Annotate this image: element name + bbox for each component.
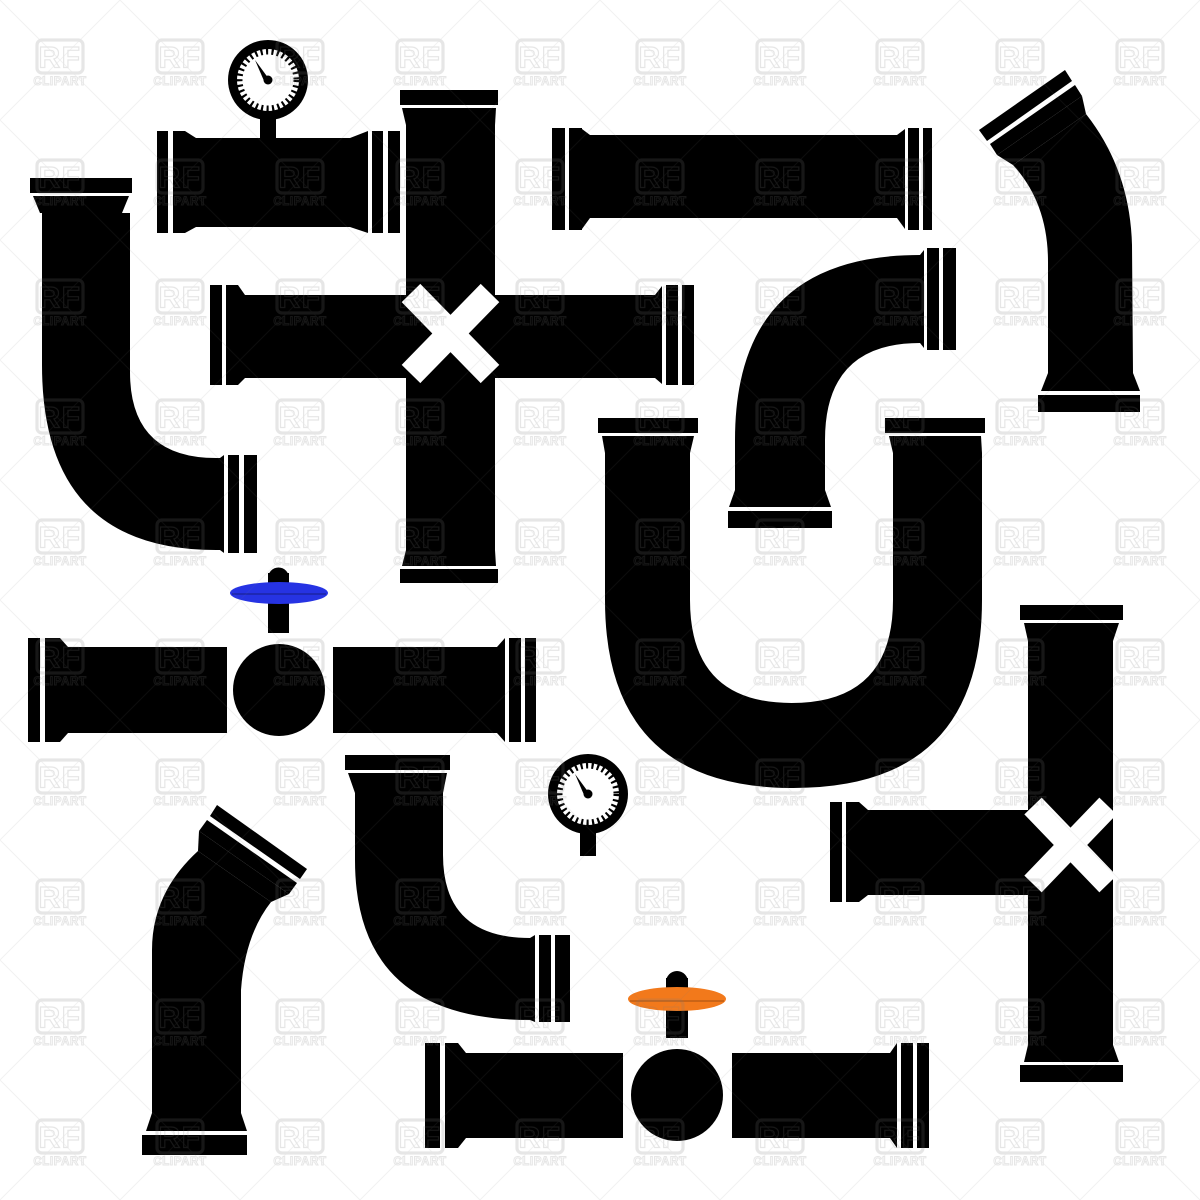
pipes-clipart: RF CLIPART — [0, 0, 1200, 1200]
clipart-canvas: RF CLIPART — [0, 0, 1200, 1200]
watermark-layer — [0, 0, 1200, 1200]
